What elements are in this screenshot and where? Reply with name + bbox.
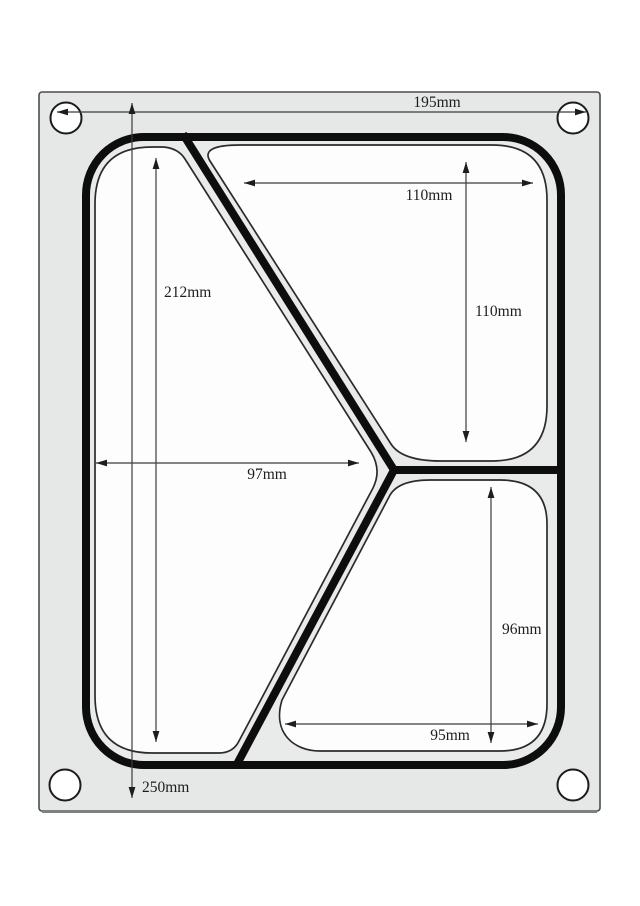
mount-hole-top-right	[558, 103, 589, 134]
dim-label: 110mm	[406, 187, 453, 204]
dim-label: 96mm	[502, 621, 542, 638]
dim-label: 250mm	[142, 779, 189, 796]
dim-label: 195mm	[413, 94, 460, 111]
mount-hole-bottom-right	[558, 770, 589, 801]
dim-label: 212mm	[164, 284, 211, 301]
mount-hole-top-left	[51, 103, 82, 134]
dim-label: 95mm	[430, 727, 470, 744]
diagram-page: 195mm 250mm 212mm 97mm 110mm 110mm	[0, 0, 640, 906]
dim-label: 97mm	[247, 466, 287, 483]
mount-hole-bottom-left	[50, 770, 81, 801]
dim-label: 110mm	[475, 303, 522, 320]
tray-sealing-diagram: 195mm 250mm 212mm 97mm 110mm 110mm	[0, 0, 640, 906]
